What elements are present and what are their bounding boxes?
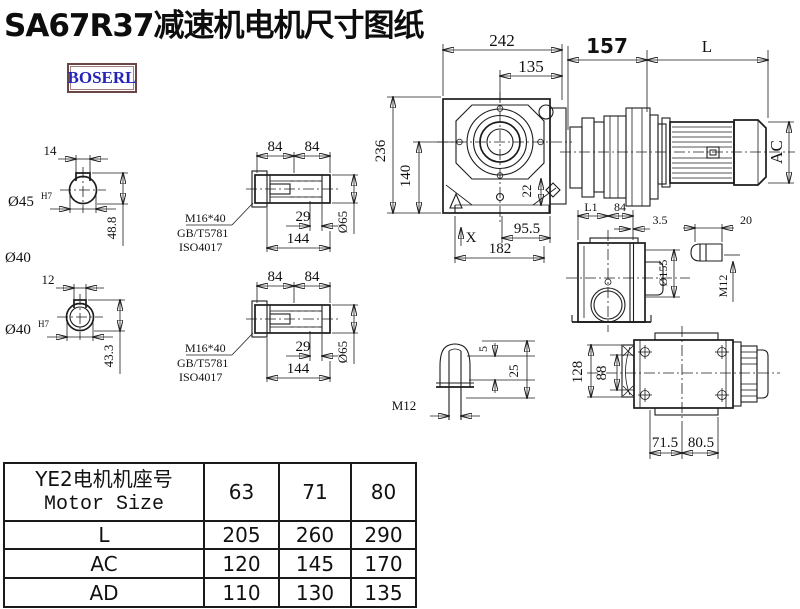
table-size-63: 63: [204, 463, 279, 521]
dim-182: 182: [489, 241, 512, 257]
dim-hub-top-29: 29: [296, 209, 311, 225]
dim-140: 140: [398, 165, 414, 188]
label-hub-top-std2: ISO4017: [179, 240, 222, 254]
table-row-l: L 205 260 290: [4, 521, 416, 549]
dim-key-width-a: 14: [44, 143, 58, 158]
motor-fins: [672, 127, 732, 178]
table-row-ad-label: AD: [4, 578, 204, 607]
shaft-section-b: 12 Ø40 H7 43.3: [5, 272, 125, 374]
table-row-l-v2: 290: [351, 521, 416, 549]
drawing-sheet: SA67R37减速机电机尺寸图纸 BOSERL 14: [0, 0, 800, 609]
dim-hub-top-dia: Ø65: [335, 211, 350, 233]
plug-detail-view: M12 5 25: [392, 341, 535, 420]
gearmotor-bottom-view: 128 88 71.5 80.5: [570, 326, 780, 459]
table-row-l-label: L: [4, 521, 204, 549]
dim-80-5: 80.5: [688, 435, 714, 451]
table-row-ac: AC 120 145 170: [4, 549, 416, 578]
table-row-ac-v2: 170: [351, 549, 416, 578]
hub-view-top: 84 84 29 144 Ø65 M16*40 GB/T5781 ISO401: [177, 139, 358, 254]
shaft-section-a: 14 Ø45 H7 48.8 Ø40: [5, 143, 128, 266]
table-row-l-v0: 205: [204, 521, 279, 549]
table-row-ad: AD 110 130 135: [4, 578, 416, 607]
hub-view-bottom: 84 84 29 144 Ø65 M16*40 GB/T5781 ISO4017: [177, 269, 358, 384]
dim-key-width-b: 12: [42, 272, 55, 287]
bottom-view-bolts: [638, 345, 729, 402]
dim-hub-top-84b: 84: [305, 139, 321, 155]
dim-bore-a: Ø45: [8, 194, 34, 210]
dim-157: 157: [586, 34, 628, 58]
dim-x-mark: X: [466, 230, 477, 246]
dim-hub-bot-144: 144: [287, 361, 310, 377]
dim-hub-bot-84b: 84: [305, 269, 321, 285]
dim-71-5: 71.5: [652, 435, 678, 451]
dim-hub-top-144: 144: [287, 231, 310, 247]
table-row-ac-v1: 145: [279, 549, 351, 578]
table-header-cn: YE2电机机座号: [5, 467, 203, 492]
motor-size-table: YE2电机机座号 Motor Size 63 71 80 L 205 260 2…: [3, 462, 417, 608]
dim-bore-a-tol: H7: [41, 191, 52, 201]
label-hub-bot-std2: ISO4017: [179, 370, 222, 384]
dim-detail-5: 5: [476, 346, 490, 352]
dim-height-a: 48.8: [104, 217, 119, 240]
gearbox-side-view: L1 84 3.5 Ø155 20 M12: [566, 200, 752, 332]
dim-l1: L1: [584, 200, 597, 214]
dim-88: 88: [594, 366, 610, 381]
label-shaft-dia: Ø40: [5, 250, 31, 266]
dim-hub-bot-29: 29: [296, 339, 311, 355]
table-row-ad-v2: 135: [351, 578, 416, 607]
dim-bore-b: Ø40: [5, 322, 31, 338]
dim-135: 135: [518, 57, 544, 76]
dim-detail-25: 25: [506, 365, 521, 378]
dim-128: 128: [570, 361, 586, 384]
dim-22: 22: [519, 185, 534, 198]
dim-side-m12: M12: [716, 275, 730, 298]
table-header-en: Motor Size: [5, 492, 203, 517]
table-header-motor-size: YE2电机机座号 Motor Size: [4, 463, 204, 521]
dim-95-5: 95.5: [514, 221, 540, 237]
dim-detail-m12: M12: [392, 398, 417, 413]
label-hub-top-std1: GB/T5781: [177, 226, 228, 240]
dim-height-b: 43.3: [101, 345, 116, 368]
table-size-80: 80: [351, 463, 416, 521]
table-row-ac-v0: 120: [204, 549, 279, 578]
label-hub-top-bolt: M16*40: [185, 211, 226, 225]
dim-155: Ø155: [656, 260, 670, 287]
dim-20: 20: [740, 213, 752, 227]
table-row-l-v1: 260: [279, 521, 351, 549]
dim-bore-b-tol: H7: [38, 319, 49, 329]
table-size-71: 71: [279, 463, 351, 521]
dim-236: 236: [373, 139, 389, 162]
dim-motor-l: L: [702, 37, 712, 56]
dim-hub-bot-84a: 84: [268, 269, 284, 285]
bottom-view-fins: [741, 352, 757, 396]
dim-ac: AC: [767, 140, 786, 164]
table-row-ac-label: AC: [4, 549, 204, 578]
label-hub-bot-std1: GB/T5781: [177, 356, 228, 370]
dim-242: 242: [489, 31, 515, 50]
dim-side-84: 84: [614, 200, 626, 214]
label-hub-bot-bolt: M16*40: [185, 341, 226, 355]
table-row-ad-v0: 110: [204, 578, 279, 607]
dim-3-5: 3.5: [653, 213, 668, 227]
dim-hub-bot-dia: Ø65: [335, 341, 350, 363]
table-row-ad-v1: 130: [279, 578, 351, 607]
dim-hub-top-84a: 84: [268, 139, 284, 155]
